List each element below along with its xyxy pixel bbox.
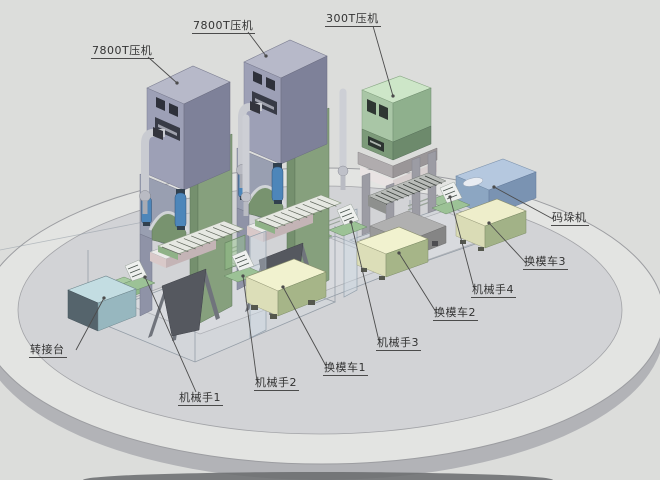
callout-mold-cart-1: 换模车1 xyxy=(323,361,368,376)
callout-press-7800-left: 7800T压机 xyxy=(91,44,154,59)
callout-robot-arm-4: 机械手4 xyxy=(471,283,516,298)
callout-robot-arm-2: 机械手2 xyxy=(254,376,299,391)
callout-robot-arm-3: 机械手3 xyxy=(376,336,421,351)
callout-palletizer: 码垛机 xyxy=(551,211,589,226)
callout-transfer-table: 转接台 xyxy=(29,343,67,358)
callout-press-300: 300T压机 xyxy=(325,12,381,27)
callout-press-7800-mid: 7800T压机 xyxy=(192,19,255,34)
layout-3d-view xyxy=(0,0,660,480)
callout-robot-arm-1: 机械手1 xyxy=(178,391,223,406)
callout-mold-cart-2: 换模车2 xyxy=(433,306,478,321)
callout-mold-cart-3: 换模车3 xyxy=(523,255,568,270)
production-line-layout: 7800T压机 7800T压机 300T压机 码垛机 换模车3 机械手4 换模车… xyxy=(0,0,660,480)
